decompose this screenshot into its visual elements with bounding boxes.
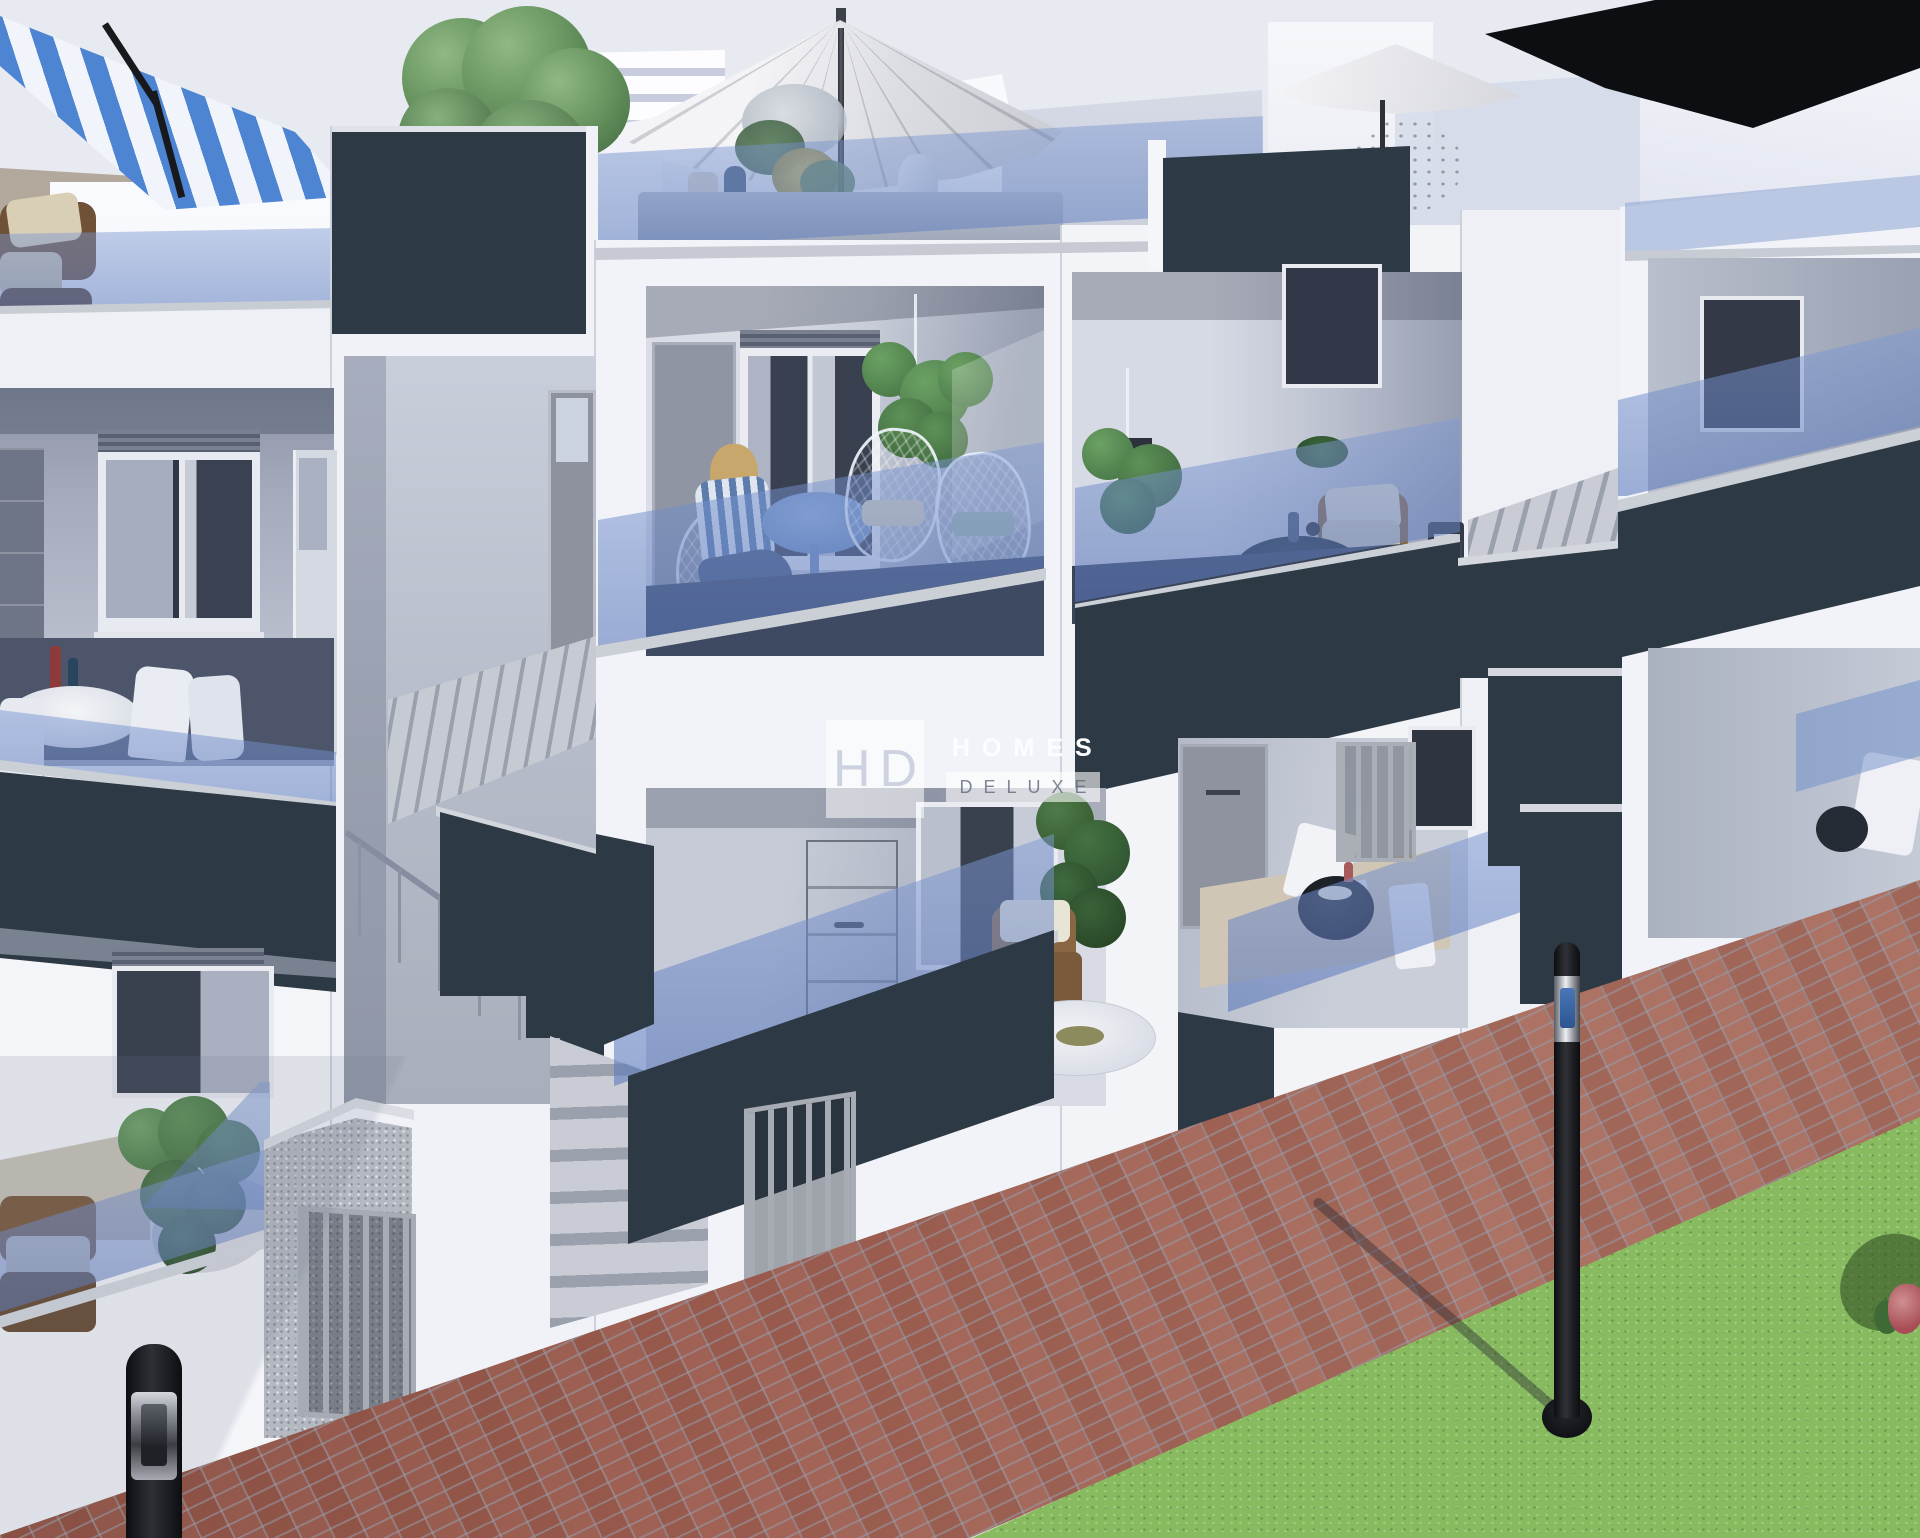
watermark-deluxe-bar: DELUXE: [946, 772, 1100, 802]
bollard-light-inner: [141, 1404, 167, 1466]
door-handle: [1206, 790, 1240, 795]
window-shutter: [112, 948, 264, 968]
flower-blossom: [1888, 1284, 1920, 1334]
table-centerpiece: [1056, 1026, 1104, 1046]
watermark-logo-box: HD: [826, 720, 924, 818]
balcony-ceiling-shadow: [1072, 272, 1462, 320]
window-panes: [1282, 264, 1382, 388]
watermark-deluxe-text: DELUXE: [948, 777, 1097, 798]
railing-post: [398, 868, 401, 963]
stairwell-wall-shade: [344, 356, 386, 1104]
watermark-homes: HOMES: [952, 734, 1104, 763]
lamp-post-sticker: [1560, 988, 1575, 1028]
window-panes: [1408, 726, 1476, 830]
window-panes: [106, 460, 252, 618]
door-glass: [299, 458, 327, 550]
balcony-fascia-return: [596, 812, 654, 1048]
railing-post: [358, 842, 361, 937]
metal-gate: [1336, 742, 1416, 862]
architectural-render: HD HOMES DELUXE: [0, 0, 1920, 1538]
window-shutter: [98, 430, 260, 454]
zigzag-panel: [1458, 548, 1622, 678]
rooftop-fascia-panel: [1163, 146, 1410, 272]
bistro-table-black: [1816, 806, 1868, 852]
balcony-ceiling-shadow: [0, 388, 334, 434]
rooftop-fascia-panel: [332, 132, 586, 334]
door-glass: [556, 398, 588, 462]
window-shutter: [740, 330, 880, 350]
hanging-plant-string: [1126, 368, 1129, 442]
wine-bottle: [50, 646, 61, 692]
watermark-initials: HD: [824, 739, 926, 799]
